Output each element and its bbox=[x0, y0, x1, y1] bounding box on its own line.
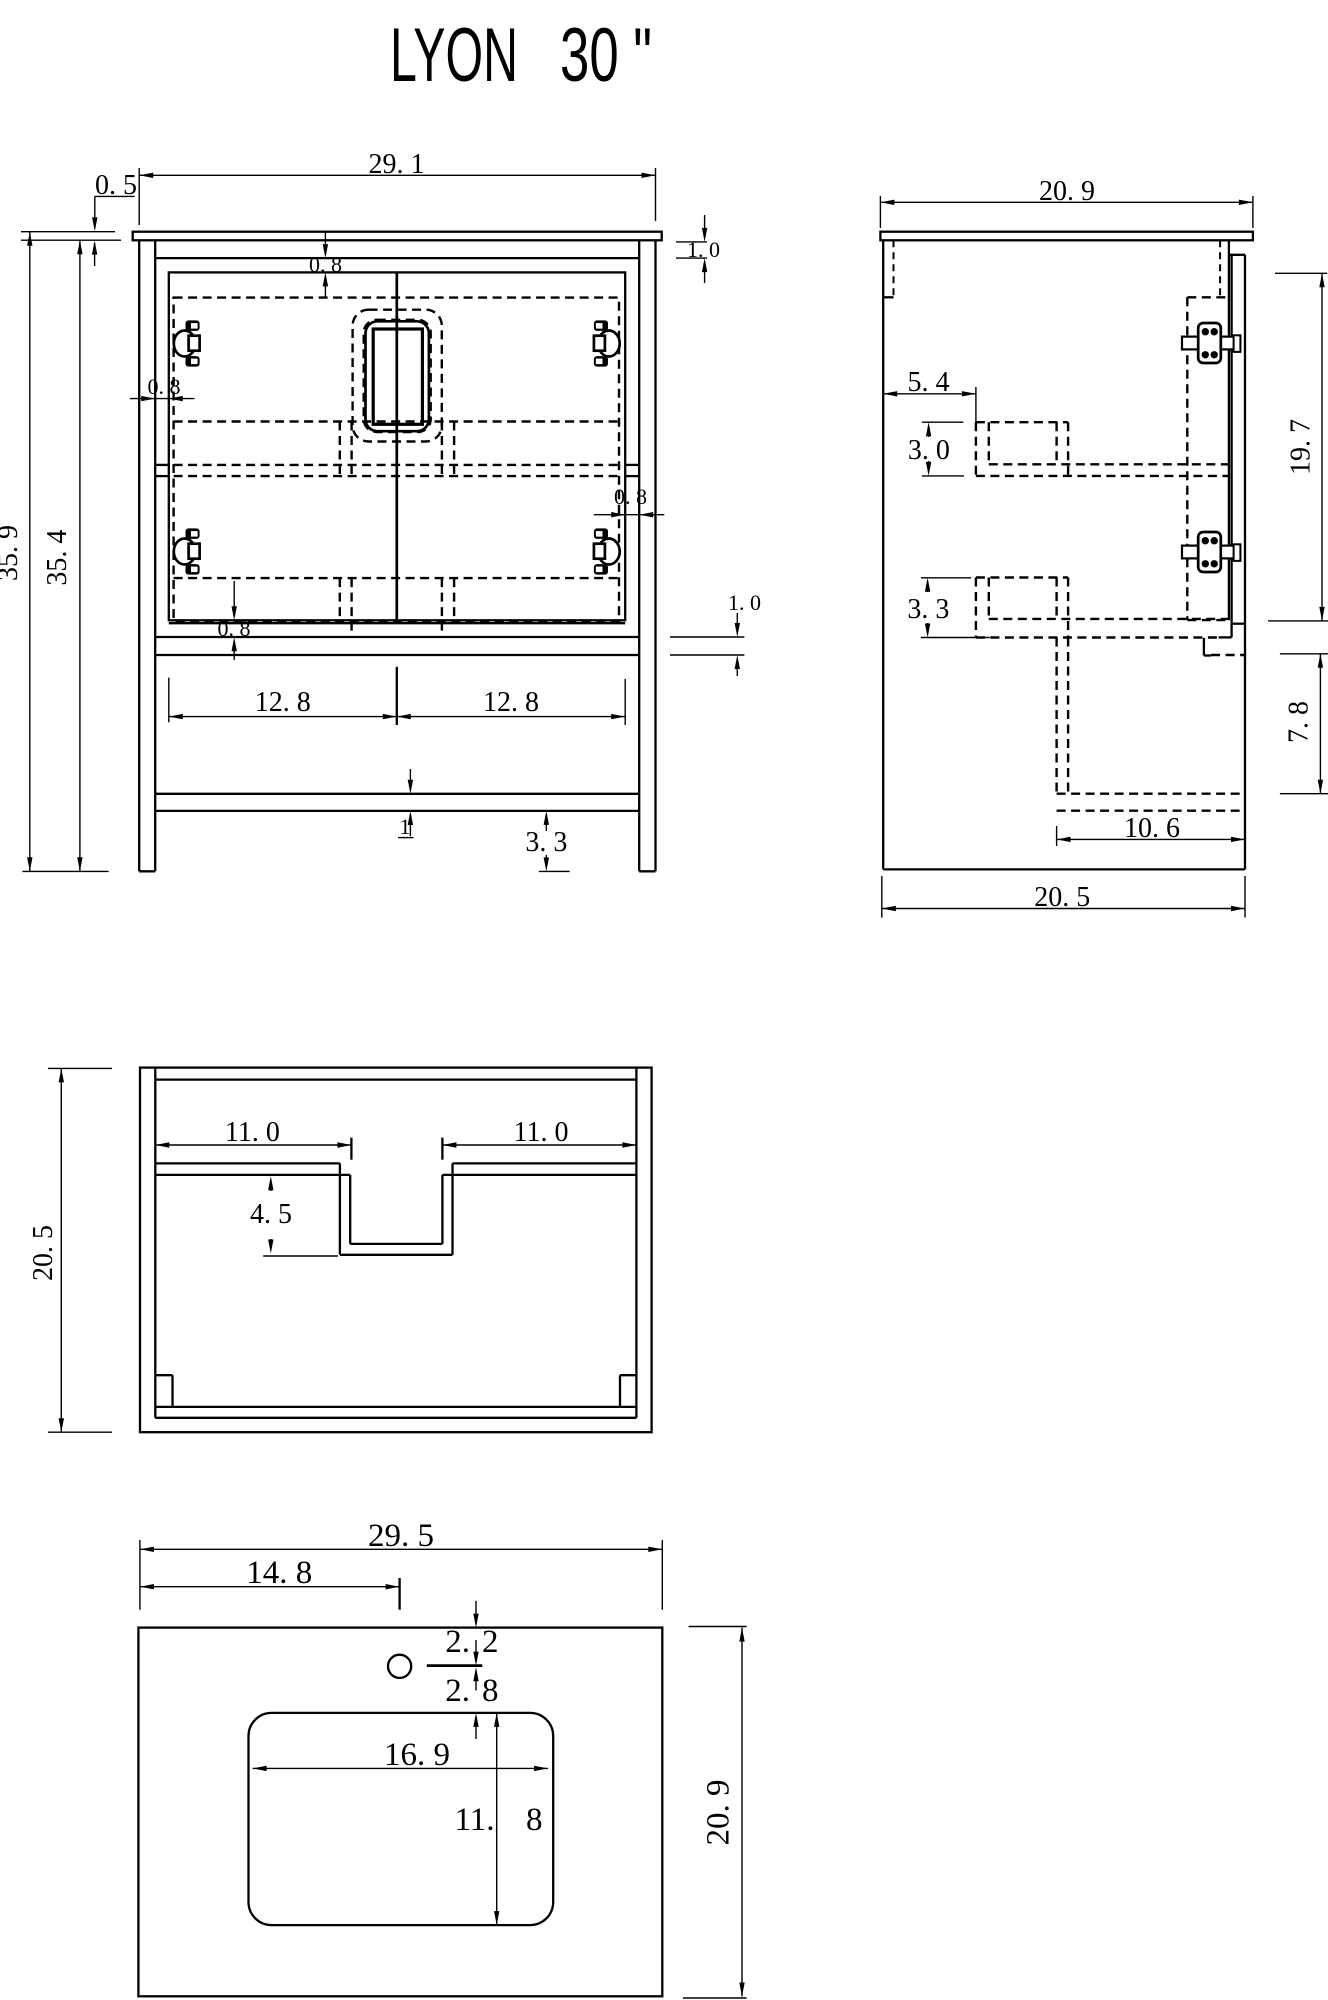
svg-text:12. 8: 12. 8 bbox=[255, 687, 311, 718]
svg-text:1. 0: 1. 0 bbox=[687, 237, 720, 262]
svg-text:0. 8: 0. 8 bbox=[614, 484, 647, 509]
svg-text:14. 8: 14. 8 bbox=[246, 1555, 312, 1591]
svg-text:11.: 11. bbox=[454, 1802, 494, 1838]
svg-text:2.: 2. bbox=[445, 1624, 470, 1660]
svg-text:2.: 2. bbox=[445, 1673, 470, 1709]
svg-text:19. 7: 19. 7 bbox=[1285, 419, 1316, 475]
svg-text:29. 1: 29. 1 bbox=[369, 149, 425, 180]
svg-text:20. 5: 20. 5 bbox=[28, 1225, 59, 1281]
svg-text:35. 9: 35. 9 bbox=[0, 525, 24, 581]
svg-text:3. 3: 3. 3 bbox=[907, 594, 949, 625]
svg-text:0. 8: 0. 8 bbox=[148, 374, 181, 399]
svg-text:20. 9: 20. 9 bbox=[1039, 176, 1095, 207]
svg-text:30 ": 30 " bbox=[560, 13, 652, 98]
svg-text:11. 0: 11. 0 bbox=[514, 1117, 569, 1148]
svg-text:1: 1 bbox=[400, 814, 411, 839]
svg-text:12. 8: 12. 8 bbox=[483, 687, 539, 718]
svg-text:1. 0: 1. 0 bbox=[728, 590, 761, 615]
svg-text:2: 2 bbox=[482, 1624, 499, 1660]
svg-text:20. 5: 20. 5 bbox=[1034, 882, 1090, 913]
svg-text:8: 8 bbox=[482, 1673, 499, 1709]
svg-text:16. 9: 16. 9 bbox=[384, 1737, 450, 1773]
svg-text:11. 0: 11. 0 bbox=[225, 1117, 280, 1148]
svg-text:29. 5: 29. 5 bbox=[368, 1518, 434, 1554]
svg-text:8: 8 bbox=[526, 1802, 543, 1838]
svg-text:35. 4: 35. 4 bbox=[42, 530, 73, 586]
svg-text:7. 8: 7. 8 bbox=[1284, 701, 1315, 743]
svg-text:5. 4: 5. 4 bbox=[908, 367, 950, 398]
svg-text:20. 9: 20. 9 bbox=[701, 1780, 737, 1846]
svg-text:4. 5: 4. 5 bbox=[250, 1199, 292, 1230]
svg-text:LYON: LYON bbox=[390, 13, 518, 98]
svg-text:0. 8: 0. 8 bbox=[218, 616, 251, 641]
svg-text:10. 6: 10. 6 bbox=[1124, 813, 1180, 844]
svg-text:3. 3: 3. 3 bbox=[525, 827, 567, 858]
